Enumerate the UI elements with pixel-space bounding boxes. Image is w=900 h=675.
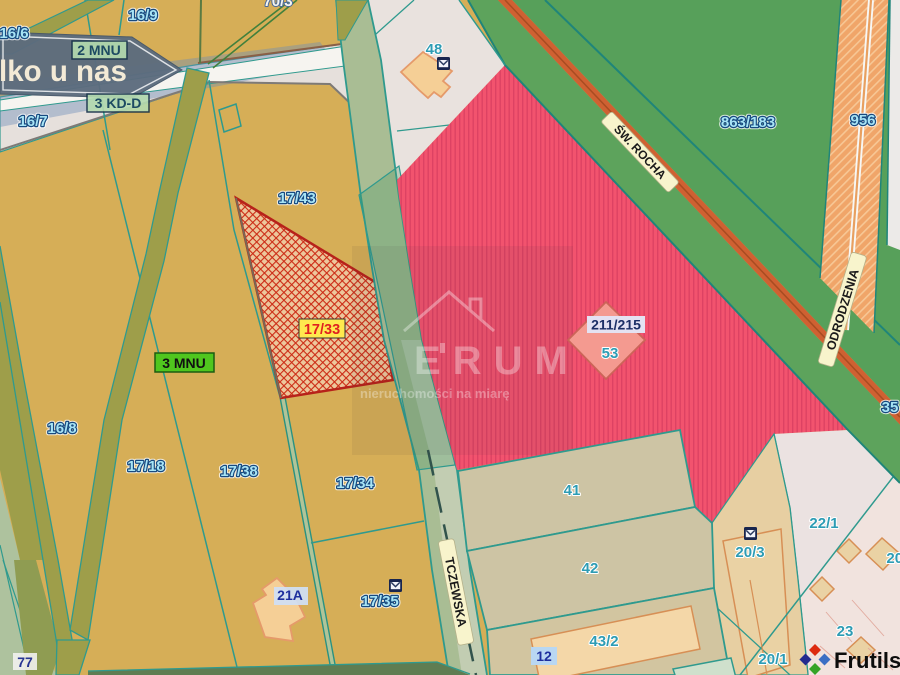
svg-text:22/1: 22/1 xyxy=(809,515,838,532)
svg-text:16/6: 16/6 xyxy=(0,25,29,42)
svg-text:53: 53 xyxy=(602,345,619,362)
svg-text:48: 48 xyxy=(426,41,443,58)
svg-text:211/215: 211/215 xyxy=(591,317,641,333)
svg-text:17/33: 17/33 xyxy=(304,322,340,338)
svg-text:35: 35 xyxy=(882,399,899,416)
svg-text:Frutils: Frutils xyxy=(834,648,900,673)
svg-text:17/35: 17/35 xyxy=(361,593,399,610)
svg-text:nieruchomości na miarę: nieruchomości na miarę xyxy=(360,386,510,401)
svg-text:17/38: 17/38 xyxy=(220,463,258,480)
svg-text:16/7: 16/7 xyxy=(18,113,47,130)
svg-text:16/8: 16/8 xyxy=(47,420,76,437)
svg-text:23: 23 xyxy=(837,623,854,640)
svg-text:17/34: 17/34 xyxy=(336,475,374,492)
svg-text:ERUM: ERUM xyxy=(414,339,580,383)
svg-text:77: 77 xyxy=(17,654,33,670)
svg-text:20/3: 20/3 xyxy=(735,544,764,561)
svg-text:956: 956 xyxy=(850,112,875,129)
svg-text:43/2: 43/2 xyxy=(589,633,618,650)
svg-text:20/1: 20/1 xyxy=(758,651,787,668)
svg-text:lko u nas: lko u nas xyxy=(0,55,127,88)
svg-text:17/43: 17/43 xyxy=(278,190,316,207)
svg-text:3 MNU: 3 MNU xyxy=(162,355,206,371)
svg-text:2 MNU: 2 MNU xyxy=(77,42,121,58)
svg-text:12: 12 xyxy=(536,648,552,664)
svg-text:17/18: 17/18 xyxy=(127,458,165,475)
svg-text:863/183: 863/183 xyxy=(721,114,775,131)
svg-text:41: 41 xyxy=(564,482,581,499)
svg-text:20/2: 20/2 xyxy=(886,550,900,567)
svg-text:3 KD-D: 3 KD-D xyxy=(95,95,142,111)
svg-text:70/3: 70/3 xyxy=(263,0,292,10)
svg-text:42: 42 xyxy=(582,560,599,577)
svg-text:21A: 21A xyxy=(277,587,303,603)
svg-text:16/9: 16/9 xyxy=(128,7,157,24)
